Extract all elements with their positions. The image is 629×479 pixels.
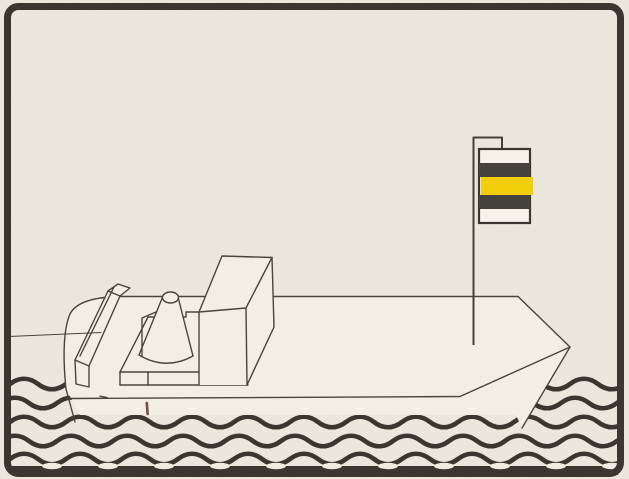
wave-trough-gap [154,463,174,469]
flag-stripe-black-upper [479,163,530,177]
wave-trough-gap [378,463,398,469]
wave-trough-gap [434,463,454,469]
wave-trough-gap [42,463,62,469]
wave-trough-gap [490,463,510,469]
hull-fill [64,297,570,429]
deckhouse-front-right-edge [246,308,247,385]
ship-hull [64,297,570,429]
boat-illustration [0,0,629,479]
wave-trough-gap [322,463,342,469]
wave-trough-gap [266,463,286,469]
cone-top-opening [163,292,179,303]
wave-trough-gap [210,463,230,469]
wave-trough-gap [546,463,566,469]
flag-stripe-yellow [481,177,533,195]
flag-stripe-black-lower [479,195,530,209]
stray-dash-mark [147,403,148,414]
illustration-page [0,0,629,479]
wave-trough-gap [98,463,118,469]
